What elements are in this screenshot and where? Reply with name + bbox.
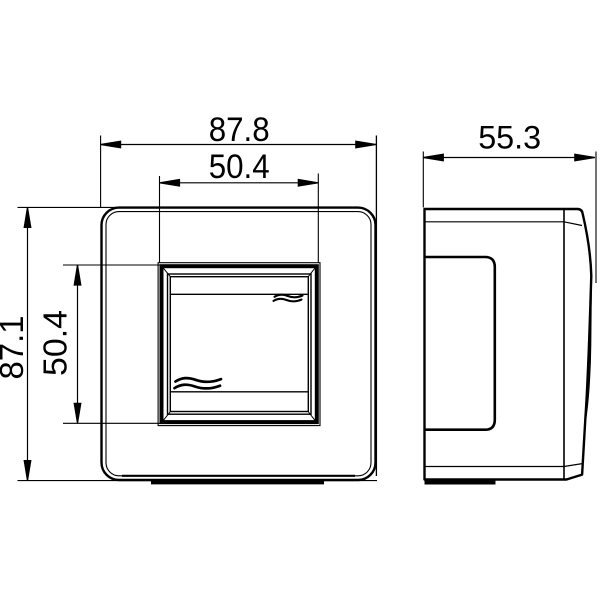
svg-text:50.4: 50.4 — [209, 148, 270, 186]
svg-text:55.3: 55.3 — [478, 120, 541, 156]
svg-text:87.8: 87.8 — [209, 111, 270, 149]
svg-text:87.1: 87.1 — [0, 316, 30, 380]
svg-text:50.4: 50.4 — [37, 310, 74, 376]
